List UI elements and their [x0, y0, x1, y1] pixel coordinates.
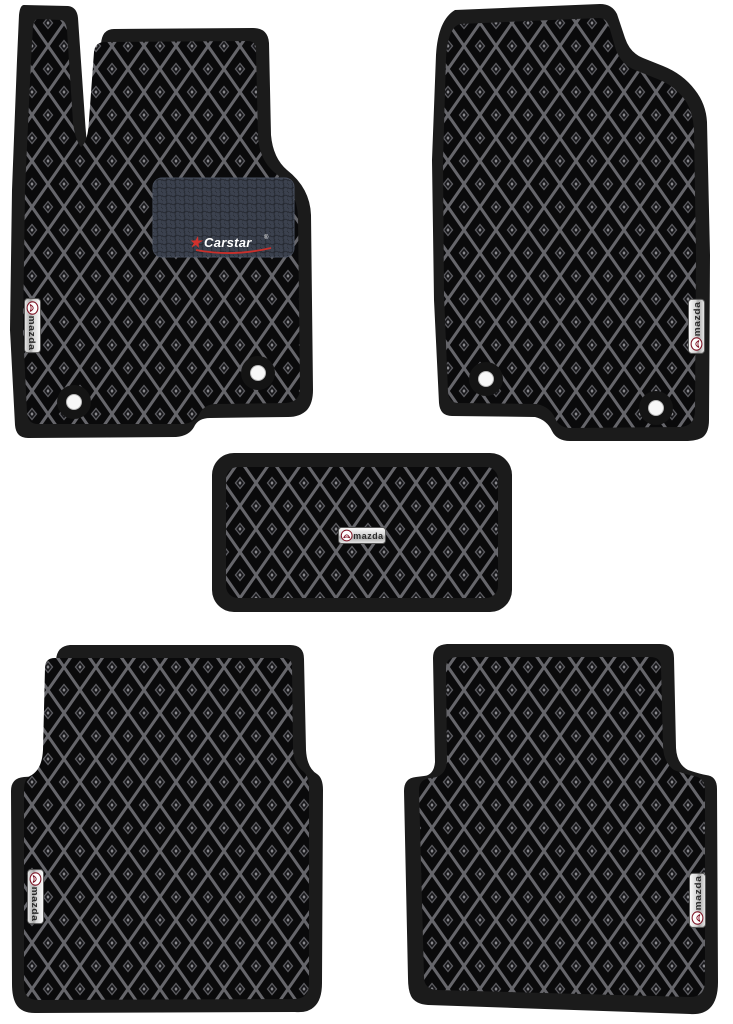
product-photo-floor-mat-set: mazda ★ Carstar ®	[0, 0, 733, 1024]
mazda-badge	[28, 870, 44, 924]
floor-mats-canvas: mazda ★ Carstar ®	[0, 0, 733, 1024]
registered-mark: ®	[264, 234, 269, 241]
fixation-hole	[57, 385, 91, 419]
mat-front-right	[432, 4, 710, 441]
carstar-brand-label: Carstar	[204, 235, 252, 250]
mat-center-tunnel	[212, 453, 512, 612]
mat-rear-left	[11, 645, 323, 1013]
mat-rear-right	[404, 644, 718, 1014]
mazda-badge	[690, 873, 706, 927]
heel-pad: ★ Carstar ®	[153, 178, 294, 257]
fixation-hole	[241, 356, 275, 390]
mazda-badge	[689, 299, 705, 353]
fixation-hole	[639, 391, 673, 425]
mat-rear-left-surface	[24, 658, 309, 1000]
mazda-badge	[25, 299, 41, 353]
mazda-badge	[339, 528, 386, 544]
fixation-hole	[469, 362, 503, 396]
mat-front-left: ★ Carstar ®	[10, 5, 313, 438]
